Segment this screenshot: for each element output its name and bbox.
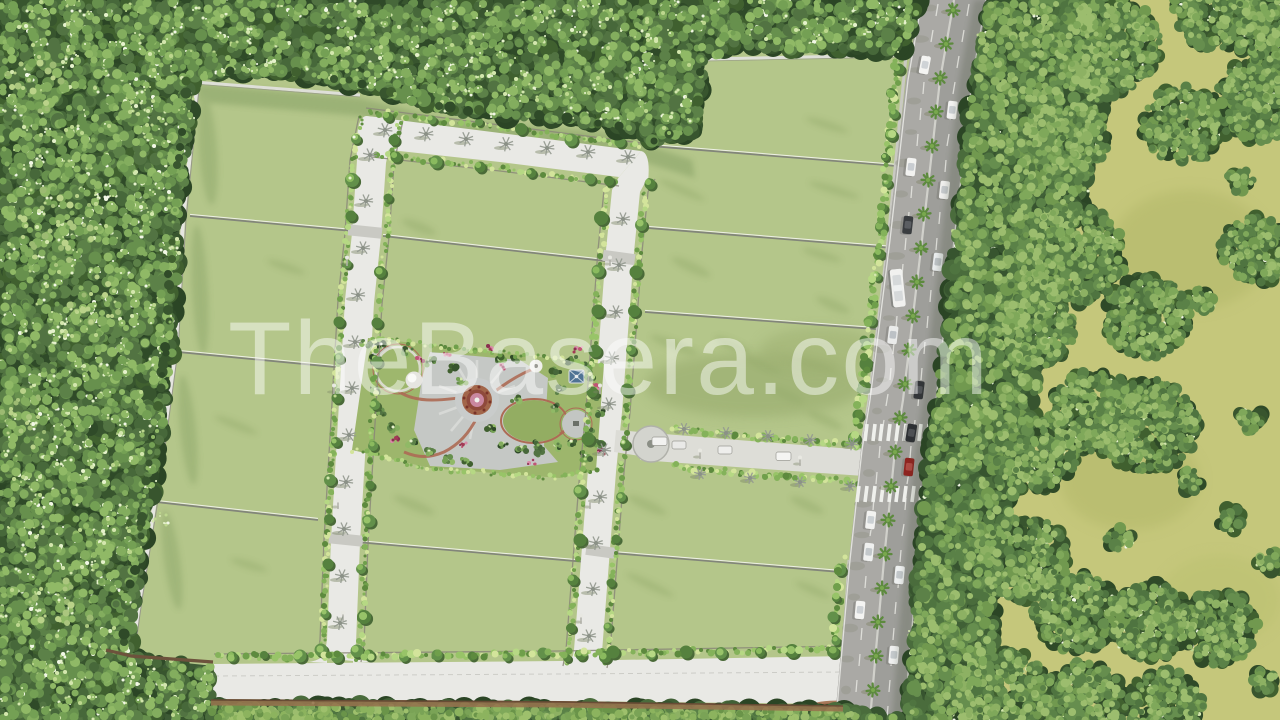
svg-text:TheBasera.com: TheBasera.com — [228, 301, 988, 417]
